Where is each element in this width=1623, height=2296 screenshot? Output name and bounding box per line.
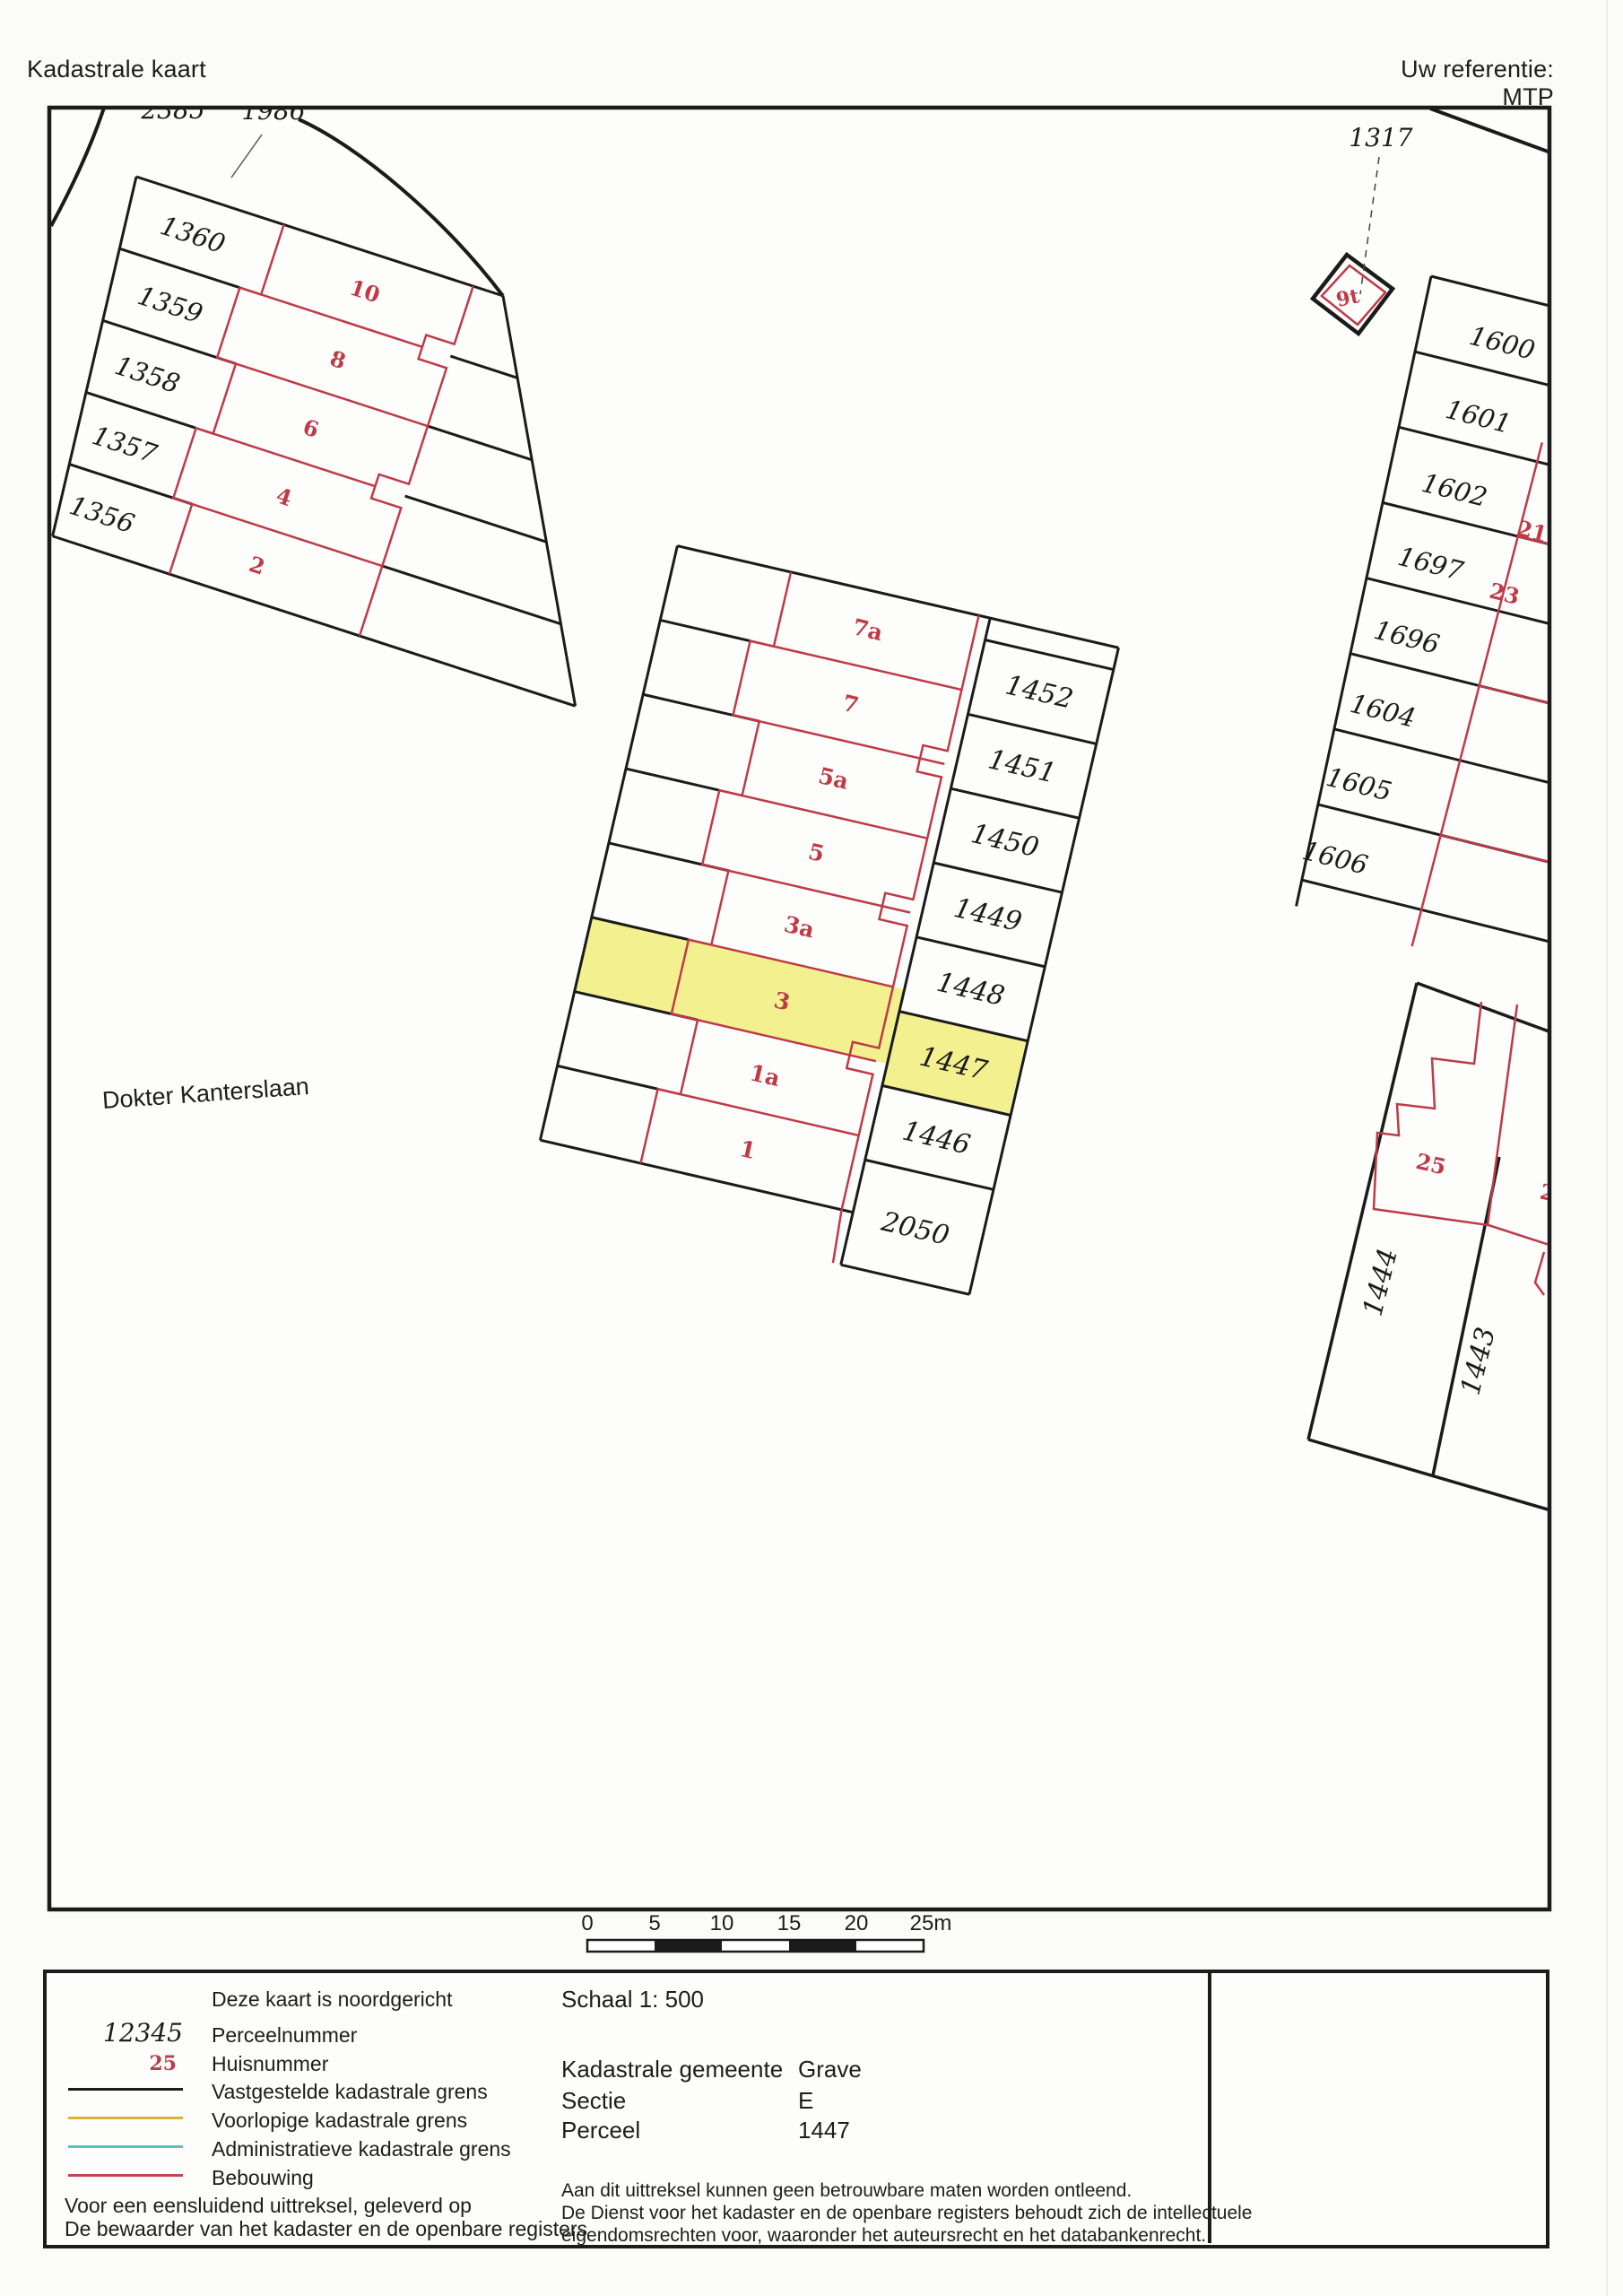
scale-bar-ticks: 0 5 10 15 20 25m	[581, 1911, 951, 1935]
legend-footer-line2: De bewaarder van het kadaster en de open…	[65, 2217, 587, 2241]
section-label: Sectie	[561, 2087, 626, 2115]
parcel-label-2385: 2385	[140, 95, 204, 125]
legend-building-sample	[68, 2174, 183, 2177]
scale-tick-5: 5	[648, 1911, 660, 1935]
municipality-value: Grave	[798, 2056, 862, 2083]
parcel-label-1317: 1317	[1349, 123, 1412, 152]
municipality-label: Kadastrale gemeente	[561, 2056, 783, 2083]
disclaimer-line1: Aan dit uittreksel kunnen geen betrouwba…	[561, 2180, 1132, 2202]
legend-box: Deze kaart is noordgericht 12345 Perceel…	[43, 1970, 1549, 2248]
legend-established-label: Vastgestelde kadastrale grens	[212, 2080, 488, 2104]
legend-north: Deze kaart is noordgericht	[212, 1987, 452, 2012]
scale-bar: 0 5 10 15 20 25m	[581, 1911, 951, 1952]
legend-provisional-sample	[68, 2117, 183, 2119]
scale-bar-segment-dark	[789, 1940, 856, 1952]
legend-established-sample	[68, 2088, 183, 2091]
scale-tick-15: 15	[777, 1911, 802, 1935]
disclaimer-line3: eigendomsrechten voor, waaronder het aut…	[561, 2225, 1206, 2247]
legend-building-label: Bebouwing	[212, 2166, 314, 2190]
legend-provisional-label: Voorlopige kadastrale grens	[212, 2109, 467, 2133]
page: { "header": { "title": "Kadastrale kaart…	[0, 0, 1623, 2296]
map-canvas: 1360 1359 1358 1357 1356 10 8 6 4 2 2385…	[0, 0, 1623, 2296]
scale-label: Schaal 1: 500	[561, 1986, 704, 2013]
parcel-value: 1447	[798, 2117, 850, 2144]
section-value: E	[798, 2087, 813, 2115]
scale-tick-20: 20	[845, 1911, 869, 1935]
parcel-label-1986: 1986	[241, 96, 305, 126]
scale-tick-25m: 25m	[910, 1911, 952, 1935]
scale-tick-10: 10	[710, 1911, 734, 1935]
legend-administrative-sample	[68, 2145, 183, 2148]
legend-parcelnumber-label: Perceelnummer	[212, 2023, 357, 2048]
scale-bar-segment-dark	[655, 1940, 722, 1952]
disclaimer-line2: De Dienst voor het kadaster en de openba…	[561, 2203, 1252, 2224]
legend-housenumber-label: Huisnummer	[212, 2052, 328, 2076]
legend-administrative-label: Administratieve kadastrale grens	[212, 2137, 511, 2161]
parcel-label: Perceel	[561, 2117, 640, 2144]
scan-artifact-line	[1606, 0, 1608, 2296]
legend-footer-line1: Voor een eensluidend uittreksel, gelever…	[65, 2194, 472, 2218]
legend-housenumber-sample: 25	[62, 2052, 177, 2075]
legend-parcelnumber-sample: 12345	[68, 2018, 183, 2048]
scale-tick-0: 0	[581, 1911, 593, 1935]
scale-bar-track	[587, 1940, 924, 1952]
